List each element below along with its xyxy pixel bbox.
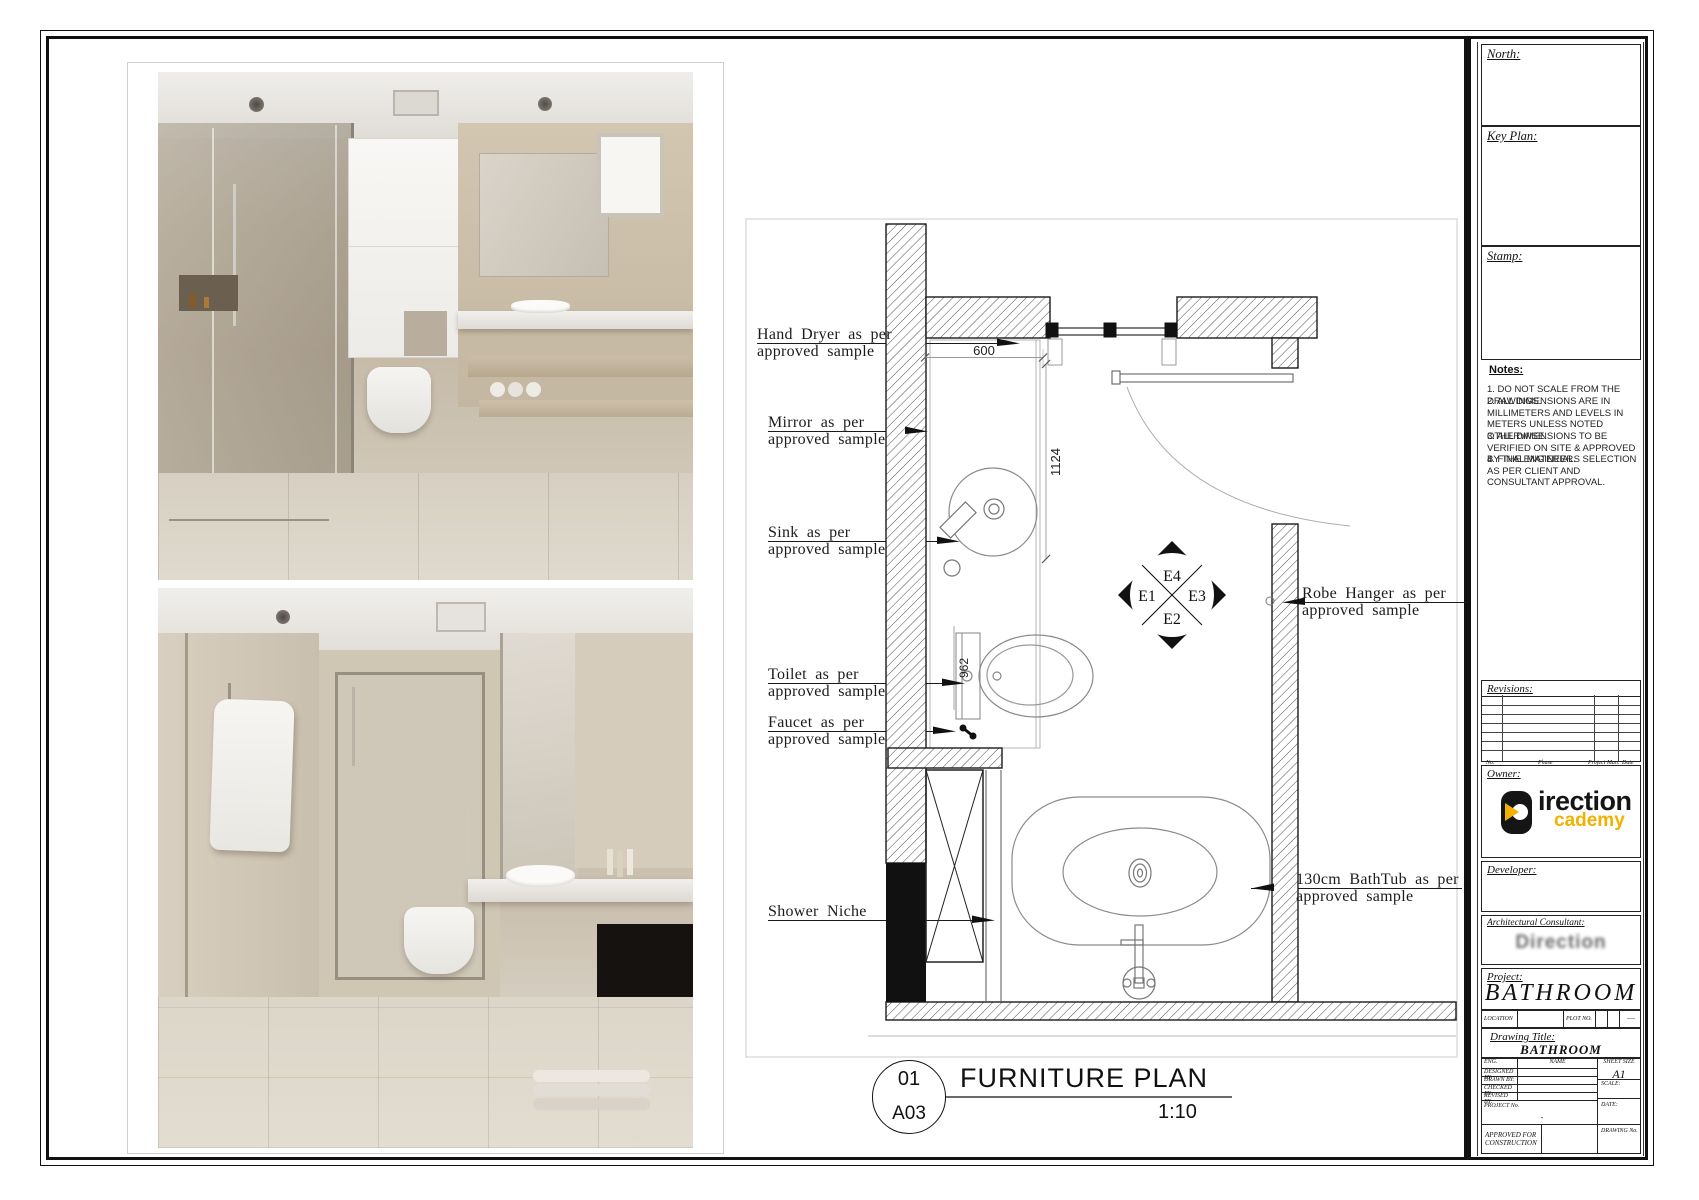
notes-item-4: 4. FINAL MATERIALS SELECTION AS PER CLIE… <box>1487 454 1637 489</box>
photo1-shower-glass <box>158 123 354 519</box>
photo1-bottle-1 <box>190 294 195 308</box>
consultant-label: Architectural Consultant: <box>1482 916 1640 928</box>
consultant-logo-blurred: Direction <box>1482 932 1640 954</box>
tt-approved: APPROVED FOR CONSTRUCTION <box>1482 1125 1542 1153</box>
photo1-bottle-2 <box>204 297 209 308</box>
photo2-spotlight-1 <box>276 610 290 624</box>
photo2-soap-bottles <box>607 849 613 875</box>
tt-drawn-value <box>1518 1077 1598 1085</box>
callout-sink: Sink as per approved sample <box>768 524 885 558</box>
view-number: 01 <box>873 1061 945 1097</box>
stamp-label: Stamp: <box>1482 247 1640 264</box>
owner-label: Owner: <box>1482 766 1640 780</box>
view-title: FURNITURE PLAN <box>960 1063 1208 1094</box>
notes-heading: Notes: <box>1489 364 1523 376</box>
tt-name: NAME <box>1518 1059 1598 1069</box>
photo1-floor-drain <box>169 519 330 521</box>
drawing-title-label: Drawing Title: <box>1482 1029 1640 1043</box>
revisions-col-line-1 <box>1502 695 1503 761</box>
callout-faucet-line1: Faucet as per <box>768 714 885 731</box>
callout-bathtub: 130cm BathTub as per approved sample <box>1296 871 1459 905</box>
tt-sheet-size-value: A1 <box>1598 1067 1640 1080</box>
owner-box: Owner: irection cademy <box>1481 765 1641 858</box>
render-photos-panel <box>127 62 724 1154</box>
titleblock-divider <box>1464 39 1471 1159</box>
key-plan-box: Key Plan: <box>1481 126 1641 246</box>
photo2-mirror <box>500 633 578 879</box>
callout-bathtub-line1: 130cm BathTub as per <box>1296 871 1459 888</box>
photo1-toilet <box>367 367 431 433</box>
photo1-sink-basin <box>511 300 570 313</box>
photo1-mirror <box>479 153 609 277</box>
photo2-toilet <box>404 907 474 974</box>
developer-box: Developer: <box>1481 861 1641 912</box>
callout-shower-niche-line1: Shower Niche <box>768 903 867 920</box>
north-box: North: <box>1481 44 1641 126</box>
titleblock-frame-left <box>1477 42 1478 1156</box>
direction-academy-logo-mark <box>1500 788 1536 836</box>
photo1-glass-highlight-1 <box>212 128 214 504</box>
callout-faucet-line2: approved sample <box>768 731 885 748</box>
photo2-door-edge <box>185 633 188 1036</box>
render-photo-bottom <box>158 588 693 1148</box>
tt-designed-by: DESIGNED BY: <box>1482 1069 1518 1077</box>
drawing-title-value: BATHROOM <box>1482 1042 1640 1058</box>
tt-eng: ENG. <box>1482 1059 1518 1069</box>
photo1-shelf-1 <box>468 356 693 376</box>
photo1-flush-panel <box>404 311 447 357</box>
photo2-bathrobe <box>209 699 294 853</box>
location-row: LOCATION PLOT NO. ---- <box>1481 1010 1641 1028</box>
drawing-sheet: 600 1124 962 <box>0 0 1699 1200</box>
callout-toilet-line1: Toilet as per <box>768 666 885 683</box>
photo1-floor <box>158 473 693 580</box>
direction-academy-logo: irection cademy <box>1500 788 1632 836</box>
callout-mirror: Mirror as per approved sample <box>768 414 885 448</box>
stamp-box: Stamp: <box>1481 246 1641 360</box>
project-name: BATHROOM <box>1482 980 1640 1007</box>
tt-revised-by: REVISED BY: <box>1482 1093 1518 1101</box>
callout-robe-hanger: Robe Hanger as per approved sample <box>1302 585 1446 619</box>
callout-hand-dryer-line2: approved sample <box>757 343 892 360</box>
photo2-shower-head-bar <box>352 687 355 766</box>
photo1-vanity-counter <box>458 311 693 329</box>
tt-checked-value <box>1518 1085 1598 1093</box>
photo2-robe-hook <box>228 683 231 700</box>
callout-hand-dryer-line1: Hand Dryer as per <box>757 326 892 343</box>
developer-label: Developer: <box>1482 862 1640 876</box>
callout-mirror-line1: Mirror as per <box>768 414 885 431</box>
view-reference-bubble: 01 A03 <box>872 1060 946 1134</box>
drawing-title-box: Drawing Title: BATHROOM <box>1481 1028 1641 1058</box>
tt-checked-by: CHECKED BY: <box>1482 1085 1518 1093</box>
callout-sink-line2: approved sample <box>768 541 885 558</box>
plot-dashes: ---- <box>1620 1011 1640 1027</box>
titleblock-frame-right <box>1643 42 1644 1156</box>
location-label: LOCATION <box>1482 1011 1518 1027</box>
callout-toilet: Toilet as per approved sample <box>768 666 885 700</box>
consultant-box: Architectural Consultant: Direction <box>1481 915 1641 965</box>
photo2-ceiling-vent <box>436 602 486 632</box>
photo1-glass-highlight-2 <box>335 125 337 511</box>
callout-bathtub-line2: approved sample <box>1296 888 1459 905</box>
tt-approved-spacer <box>1542 1125 1598 1153</box>
revisions-rows <box>1482 697 1640 751</box>
callout-sink-line1: Sink as per <box>768 524 885 541</box>
photo2-towel-stack <box>533 1070 651 1082</box>
plot-cell-1 <box>1596 1011 1608 1027</box>
view-scale: 1:10 <box>1158 1101 1197 1124</box>
photo1-towel-rolls <box>490 382 505 397</box>
tt-date-label: DATE: <box>1598 1100 1640 1125</box>
callout-faucet: Faucet as per approved sample <box>768 714 885 748</box>
revisions-col-line-3 <box>1618 695 1619 761</box>
callout-toilet-line2: approved sample <box>768 683 885 700</box>
callout-robe-hanger-line2: approved sample <box>1302 602 1446 619</box>
tt-designed-value <box>1518 1069 1598 1077</box>
callout-mirror-line2: approved sample <box>768 431 885 448</box>
photo2-sink-basin <box>506 865 576 887</box>
photo2-right-wall <box>575 633 693 868</box>
photo2-shower-handle <box>467 811 470 865</box>
revisions-label: Revisions: <box>1482 681 1640 697</box>
north-label: North: <box>1482 45 1640 62</box>
callout-hand-dryer: Hand Dryer as per approved sample <box>757 326 892 360</box>
photo2-vanity-counter <box>468 879 693 901</box>
photo1-cabinet-split <box>349 246 461 247</box>
photo1-shelf-2 <box>479 400 693 417</box>
tt-drawing-no-label: DRAWING No. <box>1598 1126 1640 1153</box>
key-plan-label: Key Plan: <box>1482 127 1640 144</box>
tt-revised-value <box>1518 1093 1598 1101</box>
revisions-box: Revisions: No. Phase Project Man. Date <box>1481 680 1641 762</box>
plot-no-label: PLOT NO. <box>1564 1011 1596 1027</box>
project-box: Project: BATHROOM <box>1481 968 1641 1010</box>
revisions-col-line-2 <box>1594 695 1595 761</box>
logo-text-academy: cademy <box>1554 812 1632 830</box>
tt-project-no-value: - <box>1532 1113 1552 1123</box>
photo1-ceiling-vent <box>393 90 439 116</box>
callout-shower-niche: Shower Niche <box>768 903 867 920</box>
render-photo-top <box>158 72 693 580</box>
title-table: ENG. NAME DESIGNED BY: DRAWN BY: CHECKED… <box>1481 1058 1641 1154</box>
location-value <box>1518 1011 1564 1027</box>
photo1-window <box>597 133 664 217</box>
tt-drawn-by: DRAWN BY: <box>1482 1077 1518 1085</box>
tt-scale-label: SCALE: <box>1598 1081 1640 1099</box>
callout-robe-hanger-line1: Robe Hanger as per <box>1302 585 1446 602</box>
plot-cell-2 <box>1608 1011 1620 1027</box>
view-sheet-ref: A03 <box>873 1097 945 1131</box>
photo1-niche <box>179 275 238 311</box>
